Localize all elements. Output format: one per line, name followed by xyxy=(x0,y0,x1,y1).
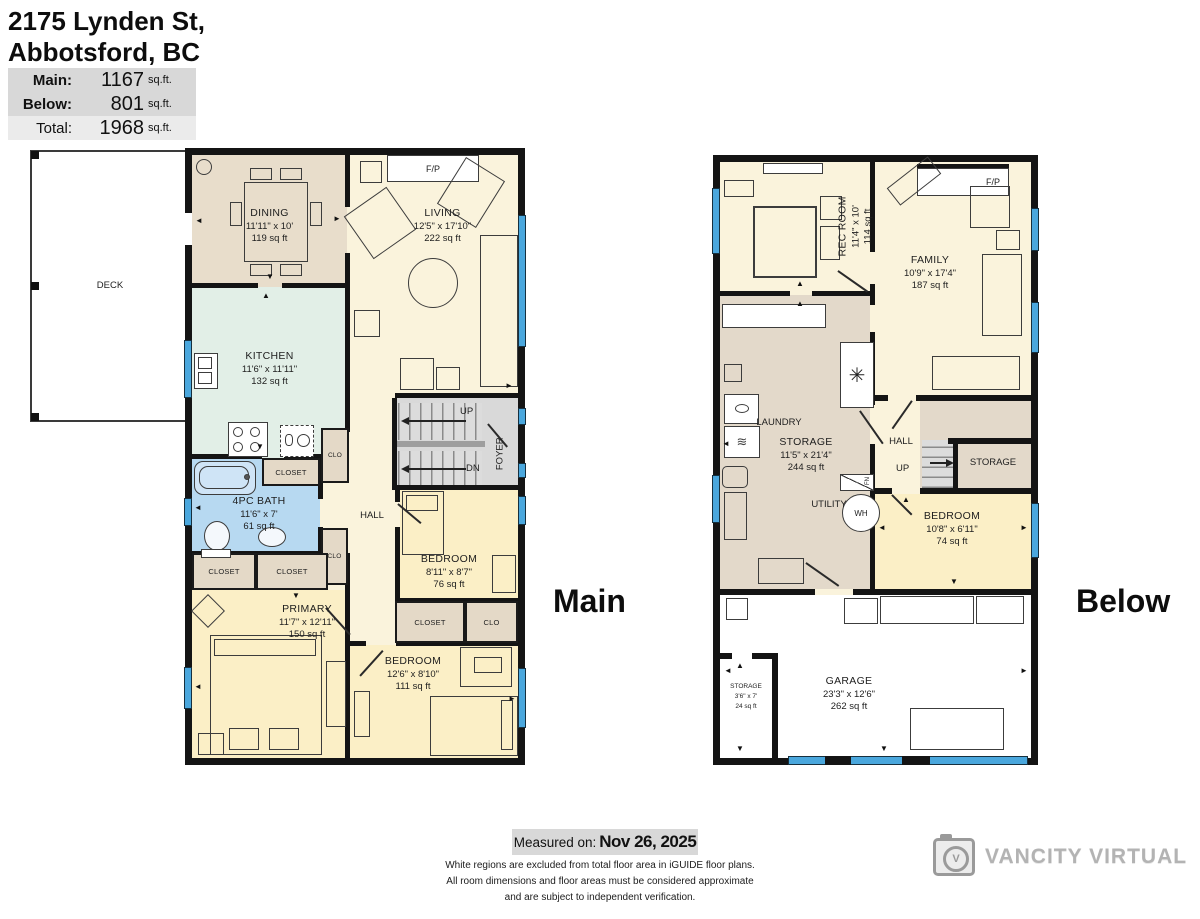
room-dims: 11'7" x 12'11" xyxy=(245,617,369,630)
shelf xyxy=(976,596,1024,624)
wall xyxy=(345,287,350,432)
room-name: BEDROOM xyxy=(890,510,1014,524)
room-name: REC ROOM xyxy=(837,170,851,282)
opening-arrow: ▲ xyxy=(262,292,270,300)
hall-label: HALL xyxy=(878,437,924,447)
deck-post xyxy=(31,413,39,421)
window xyxy=(518,668,526,728)
room-label-family: FAMILY 10'9" x 17'4" 187 sq ft xyxy=(868,254,992,293)
deck-post xyxy=(31,151,39,159)
floorplan-page: 2175 Lynden St, Abbotsford, BC Main: 116… xyxy=(0,0,1200,919)
room-dims: 23'3" x 12'6" xyxy=(787,689,911,702)
chair xyxy=(198,733,224,755)
wall xyxy=(875,488,892,494)
drain xyxy=(244,474,250,480)
room-dims: 11'6" x 7' xyxy=(200,509,318,522)
dresser xyxy=(326,661,346,727)
garage-door-post xyxy=(902,756,930,765)
below-floor-title: Below xyxy=(1076,583,1170,620)
room-name: BEDROOM xyxy=(389,553,509,567)
room-label-living: LIVING 12'5" x 17'10" 222 sq ft xyxy=(380,207,505,246)
window xyxy=(184,667,192,709)
door-leaf xyxy=(892,400,913,429)
wall xyxy=(920,488,1031,494)
counter xyxy=(722,304,826,328)
room-label-storage-small: STORAGE 3'6" x 7' 24 sq ft xyxy=(722,682,770,711)
area-row-below: Below: 801 sq.ft. xyxy=(8,92,196,116)
area-value: 1167 xyxy=(72,69,144,92)
cabinet xyxy=(724,364,742,382)
opening-arrow: ▼ xyxy=(292,592,300,600)
measured-on-label: Measured on: xyxy=(514,835,597,850)
below-floor-plan: F/P ≋ ✳ FN WH xyxy=(713,155,1038,765)
room-label-garage: GARAGE 23'3" x 12'6" 262 sq ft xyxy=(787,675,911,714)
room-name: 4PC BATH xyxy=(200,495,318,509)
furnace-fan: ✳ xyxy=(840,342,874,408)
cabinet xyxy=(436,367,460,390)
room-dims: 8'11" x 8'7" xyxy=(389,567,509,580)
area-summary-table: Main: 1167 sq.ft. Below: 801 sq.ft. Tota… xyxy=(8,68,196,140)
area-label: Below: xyxy=(8,96,72,113)
stove xyxy=(228,422,268,457)
room-label-storage-main: STORAGE 11'5" x 21'4" 244 sq ft xyxy=(744,436,868,475)
area-value: 801 xyxy=(72,93,144,116)
stairs-up-label: UP xyxy=(460,407,490,417)
bed-foot-bench xyxy=(229,728,259,750)
stair-landing-divider xyxy=(395,441,485,447)
opening-arrow: ► xyxy=(505,382,513,390)
room-dims: 10'9" x 17'4" xyxy=(868,268,992,281)
window xyxy=(712,188,720,254)
opening-arrow: ▼ xyxy=(880,745,888,753)
room-area: 61 sq ft xyxy=(200,521,318,534)
toilet-tank xyxy=(201,549,231,558)
window xyxy=(518,215,526,347)
room-name: DINING xyxy=(207,207,332,221)
opening-arrow: ▼ xyxy=(950,578,958,586)
opening-arrow: ◄ xyxy=(195,217,203,225)
deck-label: DECK xyxy=(60,280,160,293)
cabinet xyxy=(400,358,434,390)
room-label-primary: PRIMARY 11'7" x 12'11" 150 sq ft xyxy=(245,603,369,642)
window xyxy=(518,463,526,478)
closet: CLOSET xyxy=(192,553,256,590)
room-label-bath: 4PC BATH 11'6" x 7' 61 sq ft xyxy=(200,495,318,534)
wall xyxy=(392,398,397,490)
area-unit: sq.ft. xyxy=(144,122,190,134)
wall xyxy=(345,253,350,287)
dining-chair xyxy=(280,264,302,276)
disclaimer-line: White regions are excluded from total fl… xyxy=(330,858,870,874)
room-dims: 11'5" x 21'4" xyxy=(744,450,868,463)
camera-notch xyxy=(940,834,952,840)
shelf xyxy=(844,598,878,624)
room-area: 244 sq ft xyxy=(744,462,868,475)
burner xyxy=(233,442,243,452)
table xyxy=(758,558,804,584)
window xyxy=(1031,208,1039,251)
window xyxy=(1031,302,1039,353)
sofa xyxy=(480,235,518,387)
stair-arrow xyxy=(408,420,466,422)
side-table xyxy=(996,230,1020,250)
room-dims: 11'11" x 10' xyxy=(207,221,332,234)
opening-arrow: ▼ xyxy=(266,273,274,281)
room-area: 111 sq ft xyxy=(351,681,475,694)
stair-arrow xyxy=(408,468,466,470)
room-label-bedroom-bottom: BEDROOM 12'6" x 8'10" 111 sq ft xyxy=(351,655,475,694)
armchair xyxy=(970,186,1010,228)
burner xyxy=(250,427,260,437)
stair-arrowhead xyxy=(401,417,409,425)
room-area: 74 sq ft xyxy=(890,536,1014,549)
tub-basin xyxy=(199,466,249,489)
faucet xyxy=(285,434,293,446)
wall xyxy=(192,283,258,288)
wh-label: WH xyxy=(854,509,867,518)
room-name: BEDROOM xyxy=(351,655,475,669)
opening-arrow: ◄ xyxy=(878,524,886,532)
stairs-up-label: UP xyxy=(896,464,922,474)
opening-arrow: ◄ xyxy=(194,683,202,691)
main-floor-title: Main xyxy=(553,583,626,620)
workbench xyxy=(910,708,1004,750)
measured-on-banner: Measured on: Nov 26, 2025 xyxy=(512,829,698,855)
bed xyxy=(402,491,444,555)
opening-arrow: ◄ xyxy=(722,440,730,448)
opening-arrow: ▲ xyxy=(796,300,804,308)
side-table xyxy=(360,161,382,183)
side-table xyxy=(354,691,370,737)
bed-foot-bench xyxy=(269,728,299,750)
sink-basin xyxy=(297,434,310,447)
wall xyxy=(853,589,1031,595)
wall xyxy=(395,393,518,398)
deck-post xyxy=(31,282,39,290)
prep-sink xyxy=(280,425,314,457)
opening-arrow: ► xyxy=(333,215,341,223)
disclaimer-line: All room dimensions and floor areas must… xyxy=(330,874,870,890)
camera-lens: V xyxy=(943,846,969,872)
brand-logo: V VANCITY VIRTUAL xyxy=(933,838,1187,876)
hall-label: HALL xyxy=(349,511,395,521)
opening-arrow: ◄ xyxy=(724,667,732,675)
window xyxy=(518,496,526,525)
light-fixture xyxy=(196,159,212,175)
opening-arrow: ▼ xyxy=(736,745,744,753)
room-dims: 11'4" x 10' xyxy=(850,170,863,282)
room-name: GARAGE xyxy=(787,675,911,689)
camera-icon: V xyxy=(933,838,975,876)
opening-arrow: ▲ xyxy=(902,496,910,504)
room-name: LIVING xyxy=(380,207,505,221)
room-area: 150 sq ft xyxy=(245,629,369,642)
foyer-label: FOYER xyxy=(495,424,505,484)
opening-arrow: ► xyxy=(1020,524,1028,532)
bed xyxy=(210,635,322,755)
dining-chair xyxy=(280,168,302,180)
laundry-label: LAUNDRY xyxy=(747,418,811,428)
bed xyxy=(430,696,518,756)
wall xyxy=(916,395,1031,401)
disclaimer-text: White regions are excluded from total fl… xyxy=(330,858,870,906)
closet: CLO xyxy=(321,428,349,483)
brand-name: VANCITY VIRTUAL xyxy=(985,845,1187,869)
room-dims: 12'6" x 8'10" xyxy=(351,669,475,682)
wall xyxy=(720,291,790,296)
dresser xyxy=(724,180,754,197)
closet: CLOSET xyxy=(262,458,320,486)
sofa xyxy=(932,356,1020,390)
window xyxy=(1031,503,1039,558)
dining-chair xyxy=(250,168,272,180)
room-area: 187 sq ft xyxy=(868,280,992,293)
room-dims: 10'8" x 6'11" xyxy=(890,524,1014,537)
fn-label: FN xyxy=(865,477,871,485)
pillow xyxy=(501,700,513,750)
round-table xyxy=(408,258,458,308)
room-name: STORAGE xyxy=(722,682,770,692)
side-table xyxy=(354,310,380,337)
shelf xyxy=(880,596,974,624)
shelf xyxy=(763,163,823,174)
burner xyxy=(233,427,243,437)
utility-label: UTILITY xyxy=(798,500,860,510)
disclaimer-line: and are subject to independent verificat… xyxy=(330,890,870,906)
wall xyxy=(772,656,778,758)
wall xyxy=(875,395,888,401)
room-area: 132 sq ft xyxy=(207,376,332,389)
washer-door xyxy=(735,404,749,413)
room-label-bedroom-below: BEDROOM 10'8" x 6'11" 74 sq ft xyxy=(890,510,1014,549)
wall xyxy=(345,155,350,207)
area-label: Main: xyxy=(8,72,72,89)
window xyxy=(184,340,192,398)
room-area: 222 sq ft xyxy=(380,233,505,246)
room-label-dining: DINING 11'11" x 10' 119 sq ft xyxy=(207,207,332,246)
closet: CLOSET xyxy=(256,553,328,590)
wall xyxy=(282,283,347,288)
property-address: 2175 Lynden St, Abbotsford, BC xyxy=(8,6,205,67)
wall xyxy=(720,589,815,595)
closet: CLO xyxy=(465,601,518,643)
wall xyxy=(948,438,1031,444)
area-row-total: Total: 1968 sq.ft. xyxy=(8,116,196,140)
opening-arrow: ▲ xyxy=(736,662,744,670)
wall xyxy=(752,653,778,659)
opening-arrow: ► xyxy=(1020,667,1028,675)
room-area: 262 sq ft xyxy=(787,701,911,714)
area-label: Total: xyxy=(8,120,72,137)
room-area: 24 sq ft xyxy=(722,702,770,712)
room-name: PRIMARY xyxy=(245,603,369,617)
deck: DECK xyxy=(30,150,192,422)
area-unit: sq.ft. xyxy=(144,74,190,86)
bathtub xyxy=(194,461,256,495)
fireplace-label: F/P xyxy=(426,164,440,174)
storage-box xyxy=(726,598,748,620)
garage-door-post xyxy=(825,756,851,765)
room-area: 119 sq ft xyxy=(207,233,332,246)
chair xyxy=(474,657,502,673)
window xyxy=(518,408,526,425)
storage-right-label: STORAGE xyxy=(958,458,1028,468)
room-name: KITCHEN xyxy=(207,350,332,364)
main-floor-plan: CLOSET CLO CLO CLOSET CLOSET CLOSET CLO … xyxy=(185,148,525,765)
closet: CLOSET xyxy=(395,601,465,643)
area-value: 1968 xyxy=(72,117,144,140)
room-dims: 12'5" x 17'10" xyxy=(380,221,505,234)
window xyxy=(184,498,192,526)
wall xyxy=(395,490,400,502)
room-label-bedroom-mid: BEDROOM 8'11" x 8'7" 76 sq ft xyxy=(389,553,509,592)
area-unit: sq.ft. xyxy=(144,98,190,110)
wall xyxy=(870,295,875,305)
pillow xyxy=(406,495,438,511)
room-label-kitchen: KITCHEN 11'6" x 11'11" 132 sq ft xyxy=(207,350,332,389)
room-area: 76 sq ft xyxy=(389,579,509,592)
window xyxy=(712,475,720,523)
wall xyxy=(395,485,518,490)
room-dims: 11'6" x 11'11" xyxy=(207,364,332,377)
measured-on-date: Nov 26, 2025 xyxy=(599,832,696,852)
room-dims: 3'6" x 7' xyxy=(722,692,770,702)
cabinet xyxy=(724,492,747,540)
stairs-dn-label: DN xyxy=(466,464,496,474)
room-name: STORAGE xyxy=(744,436,868,450)
opening-arrow: ▲ xyxy=(796,280,804,288)
bed xyxy=(753,206,817,278)
opening-arrow: ▼ xyxy=(256,443,264,451)
deck-door-opening xyxy=(184,213,192,245)
area-row-main: Main: 1167 sq.ft. xyxy=(8,68,196,92)
opening-arrow: ► xyxy=(508,695,516,703)
room-name: FAMILY xyxy=(868,254,992,268)
address-line1: 2175 Lynden St, xyxy=(8,6,205,37)
wall xyxy=(720,653,732,659)
stair-arrowhead xyxy=(401,465,409,473)
address-line2: Abbotsford, BC xyxy=(8,37,205,68)
